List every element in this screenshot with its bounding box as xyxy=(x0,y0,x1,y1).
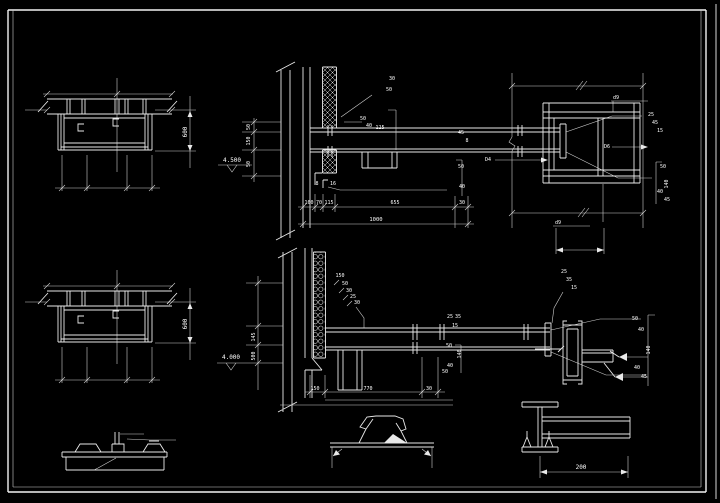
dimension-label: 30 xyxy=(426,386,432,392)
dimension-label: 160 xyxy=(304,200,313,206)
dimension-label: 40 xyxy=(366,123,372,129)
dimension-label: D4 xyxy=(485,157,491,163)
cad-application-window: 6006004.50050150503050504012545825451550… xyxy=(0,0,720,503)
dimension-label: 50 xyxy=(246,124,252,130)
dimension-label: 115 xyxy=(324,200,333,206)
dimension-label: 8 xyxy=(315,181,318,187)
dimension-label: 150 xyxy=(310,386,319,392)
dimension-label: 50 xyxy=(246,161,252,167)
dimension-label: 45 xyxy=(641,374,647,380)
dimension-label: 45 xyxy=(664,197,670,203)
dimension-label: 50 xyxy=(386,87,392,93)
dimension-label: 140 xyxy=(664,179,670,188)
dimension-label: 8 xyxy=(465,138,468,144)
dimension-label: 25 xyxy=(447,314,453,320)
dimension-label: 600 xyxy=(182,318,189,329)
dimension-label: 25 xyxy=(648,112,654,118)
dimension-label: 45 xyxy=(458,130,464,136)
dimension-label: 30 xyxy=(459,200,465,206)
dimension-label: 50 xyxy=(360,116,366,122)
dimension-label: 140 xyxy=(646,345,652,354)
dimension-label: 45 xyxy=(652,120,658,126)
dimension-label: 150 xyxy=(335,273,344,279)
dimension-label: 50 xyxy=(660,164,666,170)
dimension-label: d9 xyxy=(555,220,561,226)
detail-bottom-middle-ridge-cap xyxy=(330,416,434,468)
dimension-label: 50 xyxy=(442,369,448,375)
dimension-label: 1000 xyxy=(369,217,382,223)
dimension-label: D6 xyxy=(604,144,610,150)
dimension-label: 140 xyxy=(457,349,463,358)
dimension-label: 70 xyxy=(316,200,322,206)
insulation-hatch xyxy=(314,252,326,358)
dimension-label: d9 xyxy=(613,95,619,101)
detail-middle-center-wall-section xyxy=(217,248,655,412)
dimension-label: 655 xyxy=(390,200,399,206)
cad-canvas[interactable]: 6006004.50050150503050504012545825451550… xyxy=(0,0,720,503)
dimension-label: 50 xyxy=(342,281,348,287)
dimension-label: 125 xyxy=(375,125,384,131)
detail-top-left-box xyxy=(25,78,196,191)
dimension-label: 50 xyxy=(446,343,452,349)
detail-middle-left-box xyxy=(25,270,196,383)
wall-hatch xyxy=(323,67,337,128)
dimension-label: 15 xyxy=(571,285,577,291)
dimension-label: 35 xyxy=(455,314,461,320)
dimension-labels: 6006004.50050150503050504012545825451550… xyxy=(182,76,670,471)
detail-bottom-left-roof-sheet xyxy=(62,432,176,470)
dimension-label: 50 xyxy=(632,316,638,322)
dimension-label: 30 xyxy=(389,76,395,82)
dimension-label: 4.000 xyxy=(222,354,240,361)
dimension-label: 16 xyxy=(330,181,336,187)
dimension-label: 50 xyxy=(458,164,464,170)
dimension-label: 40 xyxy=(638,327,644,333)
dimension-label: 40 xyxy=(459,184,465,190)
dimension-label: 200 xyxy=(576,464,587,471)
dimension-label: 40 xyxy=(634,365,640,371)
dimension-label: 35 xyxy=(566,277,572,283)
dimension-label: 150 xyxy=(246,136,252,145)
dimension-label: 15 xyxy=(657,128,663,134)
wall-hatch xyxy=(323,150,337,173)
dimension-label: 600 xyxy=(182,126,189,137)
dimension-label: 500 xyxy=(251,351,257,360)
dimension-label: 770 xyxy=(363,386,372,392)
dimension-label: 4.500 xyxy=(223,157,241,164)
detail-top-right-frame xyxy=(495,73,648,254)
slope-arrow xyxy=(333,450,431,456)
dimension-label: 25 xyxy=(561,269,567,275)
dimension-label: 145 xyxy=(251,332,257,341)
dimension-label: 40 xyxy=(657,189,663,195)
dimension-label: 15 xyxy=(452,323,458,329)
dimension-label: 30 xyxy=(354,300,360,306)
